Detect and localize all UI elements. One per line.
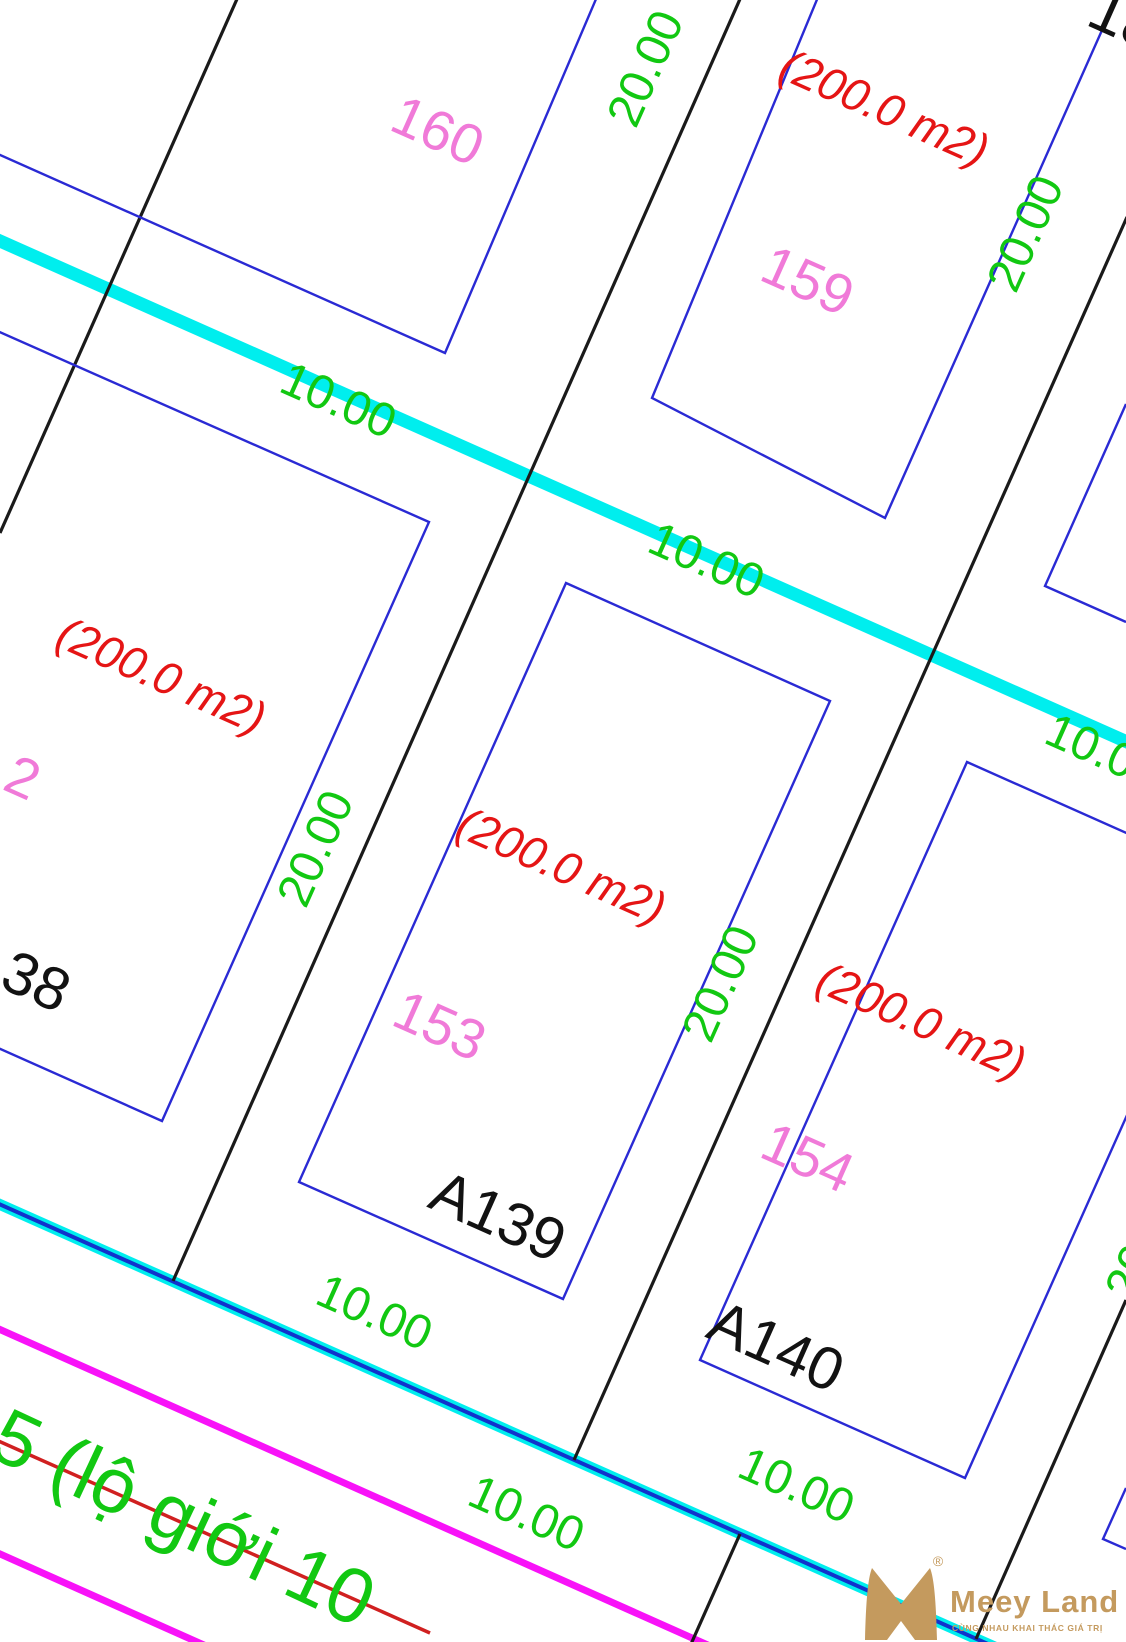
code-a140: A140 bbox=[699, 1287, 854, 1405]
code-top-right-partial: 18 bbox=[1078, 0, 1126, 66]
setback-outlines bbox=[0, 0, 1126, 1549]
setback-parcel-next-bottom-right bbox=[1103, 1488, 1126, 1549]
dim-20-parcel-152: 20.00 bbox=[267, 783, 364, 914]
road-lines bbox=[0, 201, 1126, 1642]
setback-parcel-next-top-right bbox=[1045, 404, 1126, 622]
brand-tagline: CÙNG NHAU KHAI THÁC GIÁ TRỊ bbox=[952, 1622, 1103, 1633]
setback-parcel-160 bbox=[0, 0, 602, 353]
parcel-154-label: 154 bbox=[752, 1109, 863, 1205]
boundary-line-160-159 bbox=[173, 0, 744, 1281]
dim-10-rear-154-partial: 10.00 bbox=[1038, 704, 1126, 801]
boundary-line-153-154 bbox=[574, 217, 1126, 1460]
road-name-label: 5 (lộ giới 10 bbox=[0, 1391, 389, 1642]
boundary-line-lower-strip bbox=[675, 1534, 740, 1642]
parcel-153-label: 153 bbox=[384, 977, 495, 1073]
parcel-160-label: 160 bbox=[382, 82, 493, 178]
area-labels: (200.0 m2) (200.0 m2) (200.0 m2) (200.0 … bbox=[49, 38, 1033, 1089]
dim-10-front-154: 10.00 bbox=[731, 1437, 862, 1534]
dim-10-front-strip: 10.00 bbox=[461, 1465, 592, 1562]
parcel-boundaries bbox=[0, 0, 1126, 1642]
dim-10-rear-152: 10.00 bbox=[273, 352, 404, 449]
dim-20-parcel-160: 20.00 bbox=[597, 3, 694, 134]
dim-20-parcel-159: 20.00 bbox=[977, 168, 1074, 299]
registered-mark: ® bbox=[933, 1553, 944, 1569]
area-label-152: (200.0 m2) bbox=[49, 606, 273, 744]
cadastral-map: 160 159 2 153 154 (200.0 m2) (200.0 m2) … bbox=[0, 0, 1126, 1642]
setback-parcel-159 bbox=[652, 0, 1119, 518]
boundary-line-left-of-160 bbox=[0, 0, 241, 533]
dim-20-parcel-153: 20.00 bbox=[672, 918, 769, 1049]
code-a138-partial: 38 bbox=[0, 937, 80, 1025]
parcel-152-label-partial: 2 bbox=[0, 742, 50, 812]
area-label-159: (200.0 m2) bbox=[772, 38, 996, 176]
area-label-154: (200.0 m2) bbox=[809, 951, 1033, 1089]
watermark: ® Meey Land CÙNG NHAU KHAI THÁC GIÁ TRỊ bbox=[865, 1553, 1119, 1640]
depth-dimension-labels: 20.00 20.00 20.00 20.00 20.00 bbox=[267, 3, 1126, 1307]
area-label-153: (200.0 m2) bbox=[449, 796, 673, 934]
cadastral-plan-svg: 160 159 2 153 154 (200.0 m2) (200.0 m2) … bbox=[0, 0, 1126, 1642]
brand-name: Meey Land bbox=[950, 1584, 1119, 1619]
meeyland-logo-icon bbox=[865, 1568, 937, 1640]
code-a139: A139 bbox=[421, 1157, 576, 1275]
dim-10-rear-153: 10.00 bbox=[641, 512, 772, 609]
parcel-159-label: 159 bbox=[752, 232, 863, 328]
dim-20-parcel-154-partial: 20.00 bbox=[1095, 1176, 1126, 1307]
